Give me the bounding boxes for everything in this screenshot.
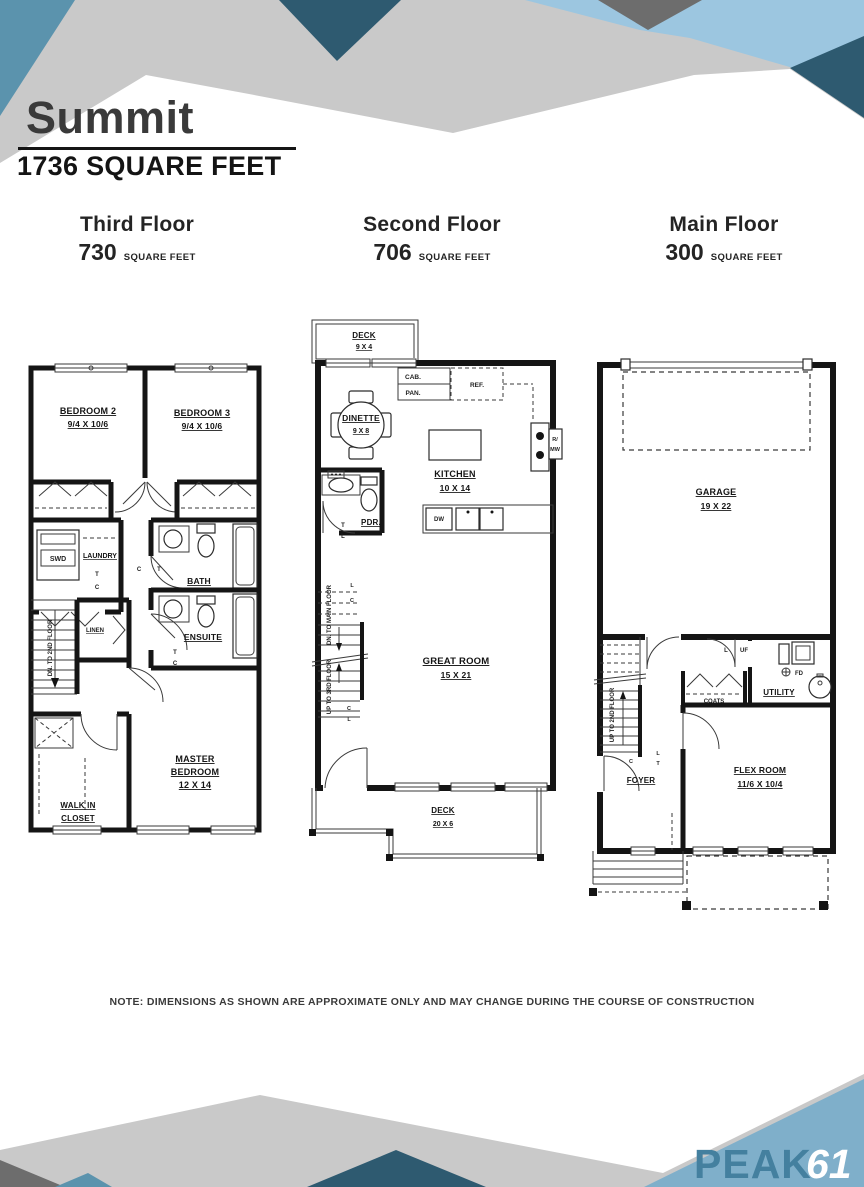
- mark-c: C: [95, 585, 100, 591]
- label-stairs-up: UP TO 3RD FLOOR: [327, 659, 333, 714]
- label-master-dim: 12 X 14: [179, 780, 211, 790]
- label-stairs-dn: DN. TO 2ND FLOOR: [48, 619, 54, 676]
- third-floor-plan: SWD LAUNDRY T C C T BATH: [25, 358, 265, 838]
- bathtub: [233, 524, 257, 588]
- label-great-room: GREAT ROOM: [423, 656, 490, 667]
- mark-l: L: [350, 583, 354, 589]
- closet-bifold: [31, 482, 111, 520]
- label-garage: GARAGE: [696, 487, 737, 497]
- mark-t: T: [173, 650, 177, 656]
- floor-name: Third Floor: [32, 213, 242, 237]
- bath-sink: [159, 526, 189, 552]
- label-flex: FLEX ROOM: [734, 765, 786, 775]
- mark-c: C: [347, 706, 351, 712]
- mark-l: L: [724, 648, 728, 654]
- toilet: [197, 596, 215, 627]
- window: [631, 846, 655, 856]
- second-floor-header: Second Floor 706 SQUARE FEET: [327, 213, 537, 266]
- label-dinette: DINETTE: [342, 413, 380, 423]
- label-fd: FD: [795, 671, 804, 677]
- construction-note: NOTE: DIMENSIONS AS SHOWN ARE APPROXIMAT…: [0, 996, 864, 1008]
- label-master-2: BEDROOM: [171, 767, 219, 777]
- label-linen: LINEN: [86, 628, 104, 634]
- label-flex-dim: 11/6 X 10/4: [737, 779, 782, 789]
- label-walkin-1: WALK IN: [60, 801, 95, 810]
- label-foyer: FOYER: [627, 776, 656, 785]
- label-dinette-dim: 9 X 8: [353, 428, 369, 435]
- floor-sqft: 706: [373, 239, 411, 266]
- label-utility: UTILITY: [763, 688, 795, 697]
- mark-l: L: [347, 717, 351, 723]
- window: [738, 846, 768, 856]
- mark-c: C: [629, 759, 633, 765]
- total-square-feet: 1736 SQUARE FEET: [17, 151, 281, 182]
- label-laundry: LAUNDRY: [83, 553, 117, 560]
- label-r-mw-1: R/: [552, 437, 558, 443]
- floor-sqft: 300: [665, 239, 703, 266]
- pdr-sink: [322, 471, 360, 495]
- label-stairs-up: UP TO 2ND FLOOR: [610, 687, 616, 742]
- label-ensuite: ENSUITE: [184, 632, 222, 642]
- bathtub: [233, 594, 257, 658]
- window: [137, 825, 189, 835]
- second-floor-plan: DECK 9 X 4 DINETTE 9 X 8 CAB. PAN. REF.: [303, 315, 563, 875]
- label-walkin-2: CLOSET: [61, 814, 95, 823]
- water-heater: [809, 674, 831, 698]
- window: [693, 846, 723, 856]
- door-arc: [323, 748, 367, 793]
- floor-plan-page: Summit 1736 SQUARE FEET Third Floor 730 …: [0, 0, 864, 1187]
- label-bedroom2-dim: 9/4 X 10/6: [68, 419, 109, 429]
- label-great-room-dim: 15 X 21: [441, 670, 472, 680]
- label-garage-dim: 19 X 22: [701, 501, 732, 511]
- window: [211, 825, 255, 835]
- label-kitchen-dim: 10 X 14: [440, 483, 471, 493]
- counter-dash: [503, 384, 533, 421]
- door-arc: [129, 668, 163, 702]
- closet-bifold: [177, 482, 259, 520]
- flex-wall-left: [683, 705, 719, 851]
- label-swd: SWD: [50, 556, 66, 563]
- mark-t: T: [341, 523, 345, 529]
- furnace: [779, 642, 814, 664]
- mark-l: L: [656, 751, 660, 757]
- door-arc: [645, 632, 681, 669]
- label-bedroom2: BEDROOM 2: [60, 406, 116, 416]
- floor-name: Second Floor: [327, 213, 537, 237]
- dinette-table: [331, 391, 391, 459]
- deck-bottom: [309, 788, 544, 861]
- label-r-mw-2: MW: [550, 447, 561, 453]
- title-underline: [18, 147, 296, 150]
- label-pdr: PDR.: [361, 518, 381, 527]
- floor-unit: SQUARE FEET: [124, 252, 196, 263]
- label-deck-bottom-dim: 20 X 6: [433, 821, 453, 828]
- window: [783, 846, 813, 856]
- porch-outline: [672, 813, 828, 910]
- logo-peak-text: PEAK: [694, 1141, 812, 1187]
- kitchen-island: [429, 430, 481, 460]
- toilet: [361, 477, 377, 511]
- walk-in-closet: [31, 714, 129, 830]
- label-dw: DW: [434, 517, 444, 523]
- main-floor-header: Main Floor 300 SQUARE FEET: [619, 213, 829, 266]
- label-bath: BATH: [187, 576, 211, 586]
- label-cab: CAB.: [405, 374, 421, 381]
- mark-c: C: [137, 567, 142, 573]
- label-deck-top: DECK: [352, 331, 375, 340]
- third-floor-header: Third Floor 730 SQUARE FEET: [32, 213, 242, 266]
- window: [53, 825, 101, 835]
- deck-top: [312, 320, 418, 363]
- mark-t: T: [157, 567, 161, 573]
- page-title: Summit: [26, 92, 194, 144]
- floor-name: Main Floor: [619, 213, 829, 237]
- lower-walls: [600, 637, 833, 851]
- logo-number-text: 61: [806, 1141, 852, 1187]
- door-arc: [151, 556, 183, 588]
- label-master-1: MASTER: [175, 754, 214, 764]
- label-deck-bottom: DECK: [431, 806, 454, 815]
- garage-door: [621, 359, 812, 450]
- window: [451, 782, 495, 792]
- patio-door: [326, 358, 416, 368]
- floor-drain: [782, 668, 790, 676]
- mark-l: L: [341, 534, 345, 540]
- window: [395, 782, 439, 792]
- floor-unit: SQUARE FEET: [419, 252, 491, 263]
- mark-c: C: [350, 598, 354, 604]
- label-pan: PAN.: [405, 390, 420, 397]
- mark-t: T: [656, 761, 660, 767]
- label-bedroom3-dim: 9/4 X 10/6: [182, 421, 223, 431]
- label-deck-top-dim: 9 X 4: [356, 344, 372, 351]
- mark-t: T: [95, 572, 99, 578]
- floor-unit: SQUARE FEET: [711, 252, 783, 263]
- door-arc: [151, 614, 187, 650]
- label-ref: REF.: [470, 382, 484, 389]
- washer-dryer: [37, 530, 79, 580]
- label-uf: UF: [740, 648, 748, 654]
- main-floor-plan: GARAGE 19 X 22 UP TO 2ND FLOOR C L T COA…: [583, 353, 853, 933]
- footer-mountains: PEAK 61: [0, 1057, 864, 1187]
- ensuite-sink: [159, 596, 189, 622]
- floor-sqft: 730: [78, 239, 116, 266]
- window: [55, 363, 127, 373]
- label-stairs-dn: DN. TO MAIN FLOOR: [327, 584, 333, 645]
- label-bedroom3: BEDROOM 3: [174, 408, 230, 418]
- label-kitchen: KITCHEN: [434, 469, 475, 479]
- window: [175, 363, 247, 373]
- toilet: [197, 524, 215, 557]
- door-arc: [115, 482, 177, 512]
- front-steps: [589, 851, 687, 896]
